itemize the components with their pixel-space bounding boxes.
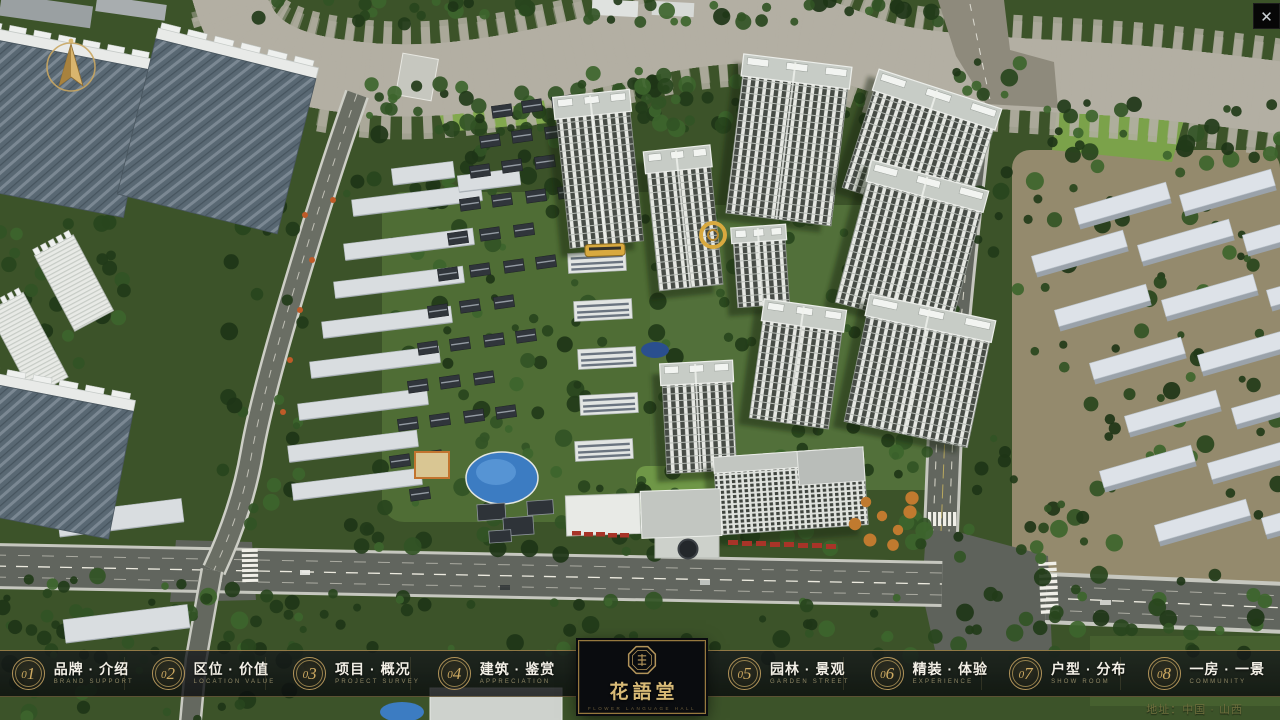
close-button[interactable]: ✕ (1253, 3, 1280, 29)
aerial-site-plan-viewport[interactable] (0, 0, 1280, 720)
nav-item-07[interactable]: 07户型 · 分布SHOW ROOM (1003, 651, 1132, 696)
nav-item-subtitle: APPRECIATION (480, 679, 555, 686)
nav-item-number-badge: 04 (438, 657, 471, 690)
nav-item-label: 品牌 · 介绍 (54, 662, 134, 677)
nav-item-subtitle: GARDEN STREET (770, 679, 850, 686)
nav-item-label: 精装 · 体验 (913, 662, 988, 677)
seal-emblem-icon (627, 645, 657, 675)
residential-tower (544, 89, 646, 257)
nav-item-number-badge: 03 (293, 657, 326, 690)
river-bridge (396, 53, 439, 101)
nav-item-number-badge: 07 (1009, 657, 1042, 690)
nav-item-number-badge: 06 (871, 657, 904, 690)
project-logo-subtitle: FLOWER LANGUAGE HALL (588, 706, 696, 711)
nav-item-label: 建筑 · 鉴赏 (480, 662, 555, 677)
nav-item-text: 项目 · 概况PROJECT SURVEY (335, 662, 420, 686)
nav-item-05[interactable]: 05园林 · 景观GARDEN STREET (722, 651, 856, 696)
clubhouse (415, 452, 449, 478)
close-icon: ✕ (1260, 8, 1273, 26)
nav-item-text: 区位 · 价值LOCATION VALUE (194, 662, 276, 686)
south-slab-building (703, 447, 869, 546)
nav-item-subtitle: SHOW ROOM (1051, 679, 1126, 686)
nav-item-label: 一房 · 一景 (1190, 662, 1265, 677)
nav-item-text: 精装 · 体验EXPERIENCE (913, 662, 988, 686)
nav-item-text: 户型 · 分布SHOW ROOM (1051, 662, 1126, 686)
residential-tower (715, 53, 852, 234)
nav-item-number-badge: 01 (12, 657, 45, 690)
nav-item-text: 建筑 · 鉴赏APPRECIATION (480, 662, 555, 686)
nav-group-left: 01品牌 · 介绍BRAND SUPPORT02区位 · 价值LOCATION … (0, 651, 567, 696)
nav-item-label: 园林 · 景观 (770, 662, 850, 677)
nav-item-03[interactable]: 03项目 · 概况PROJECT SURVEY (287, 651, 426, 696)
presentation-stage: ✕ 01品牌 · 介绍BRAND SUPPORT02区位 · 价值LOCATIO… (0, 0, 1280, 720)
project-logo-title: 花語堂 (605, 677, 678, 704)
nav-item-text: 品牌 · 介绍BRAND SUPPORT (54, 662, 134, 686)
nav-item-subtitle: COMMUNITY (1190, 679, 1265, 686)
residential-tower (738, 298, 846, 437)
nav-item-number-badge: 08 (1148, 657, 1181, 690)
nav-item-text: 一房 · 一景COMMUNITY (1190, 662, 1265, 686)
nav-item-label: 户型 · 分布 (1051, 662, 1126, 677)
project-logo-panel[interactable]: 花語堂 FLOWER LANGUAGE HALL (578, 640, 706, 714)
nav-item-06[interactable]: 06精装 · 体验EXPERIENCE (865, 651, 994, 696)
shuttle-bus (585, 243, 625, 256)
nav-item-01[interactable]: 01品牌 · 介绍BRAND SUPPORT (6, 651, 140, 696)
nav-item-text: 园林 · 景观GARDEN STREET (770, 662, 850, 686)
project-address: 地址：中国 · 山西 (1146, 701, 1243, 717)
nav-item-subtitle: EXPERIENCE (913, 679, 988, 686)
nav-item-02[interactable]: 02区位 · 价值LOCATION VALUE (146, 651, 282, 696)
nav-item-label: 区位 · 价值 (194, 662, 276, 677)
nav-item-subtitle: BRAND SUPPORT (54, 679, 134, 686)
nav-item-number-badge: 02 (152, 657, 185, 690)
nav-item-subtitle: LOCATION VALUE (194, 679, 276, 686)
nav-item-04[interactable]: 04建筑 · 鉴赏APPRECIATION (432, 651, 561, 696)
nav-item-subtitle: PROJECT SURVEY (335, 679, 420, 686)
nav-item-number-badge: 05 (728, 657, 761, 690)
nav-group-right: 05园林 · 景观GARDEN STREET06精装 · 体验EXPERIENC… (713, 651, 1280, 696)
nav-item-08[interactable]: 08一房 · 一景COMMUNITY (1142, 651, 1271, 696)
nav-item-label: 项目 · 概况 (335, 662, 420, 677)
